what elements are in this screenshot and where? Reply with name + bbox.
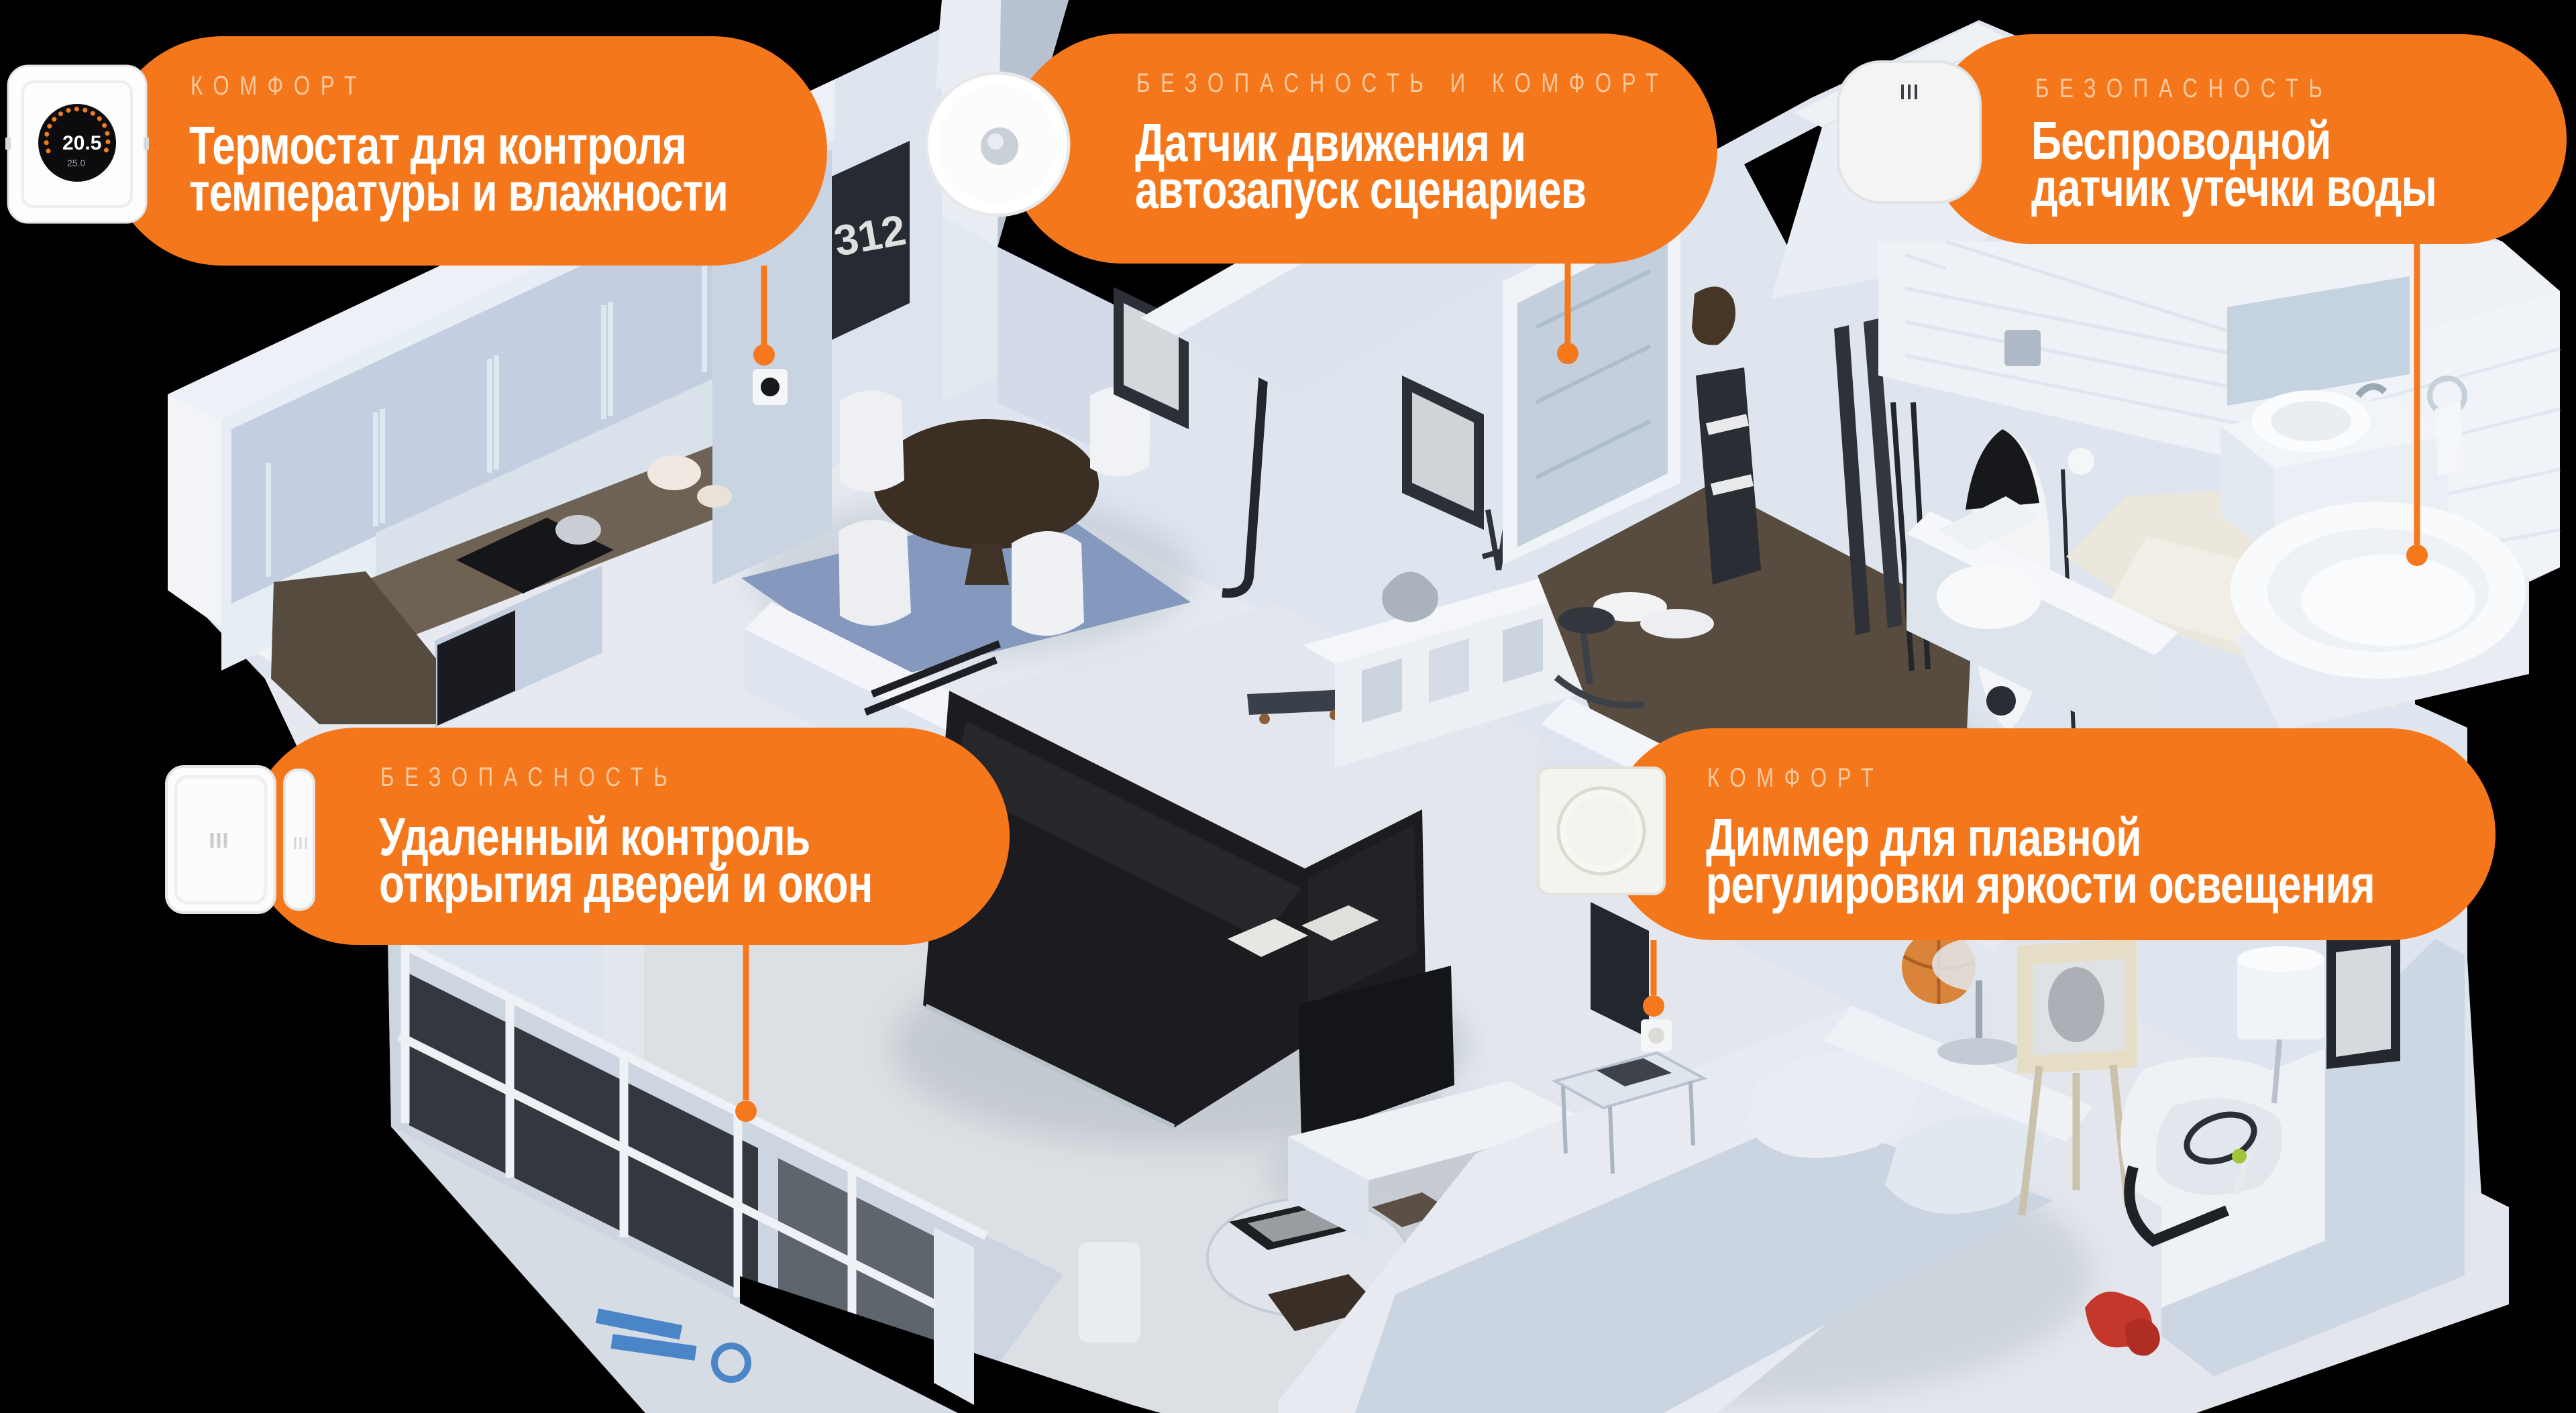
svg-text:20.5: 20.5	[62, 132, 101, 154]
svg-text:25.0: 25.0	[67, 158, 85, 168]
